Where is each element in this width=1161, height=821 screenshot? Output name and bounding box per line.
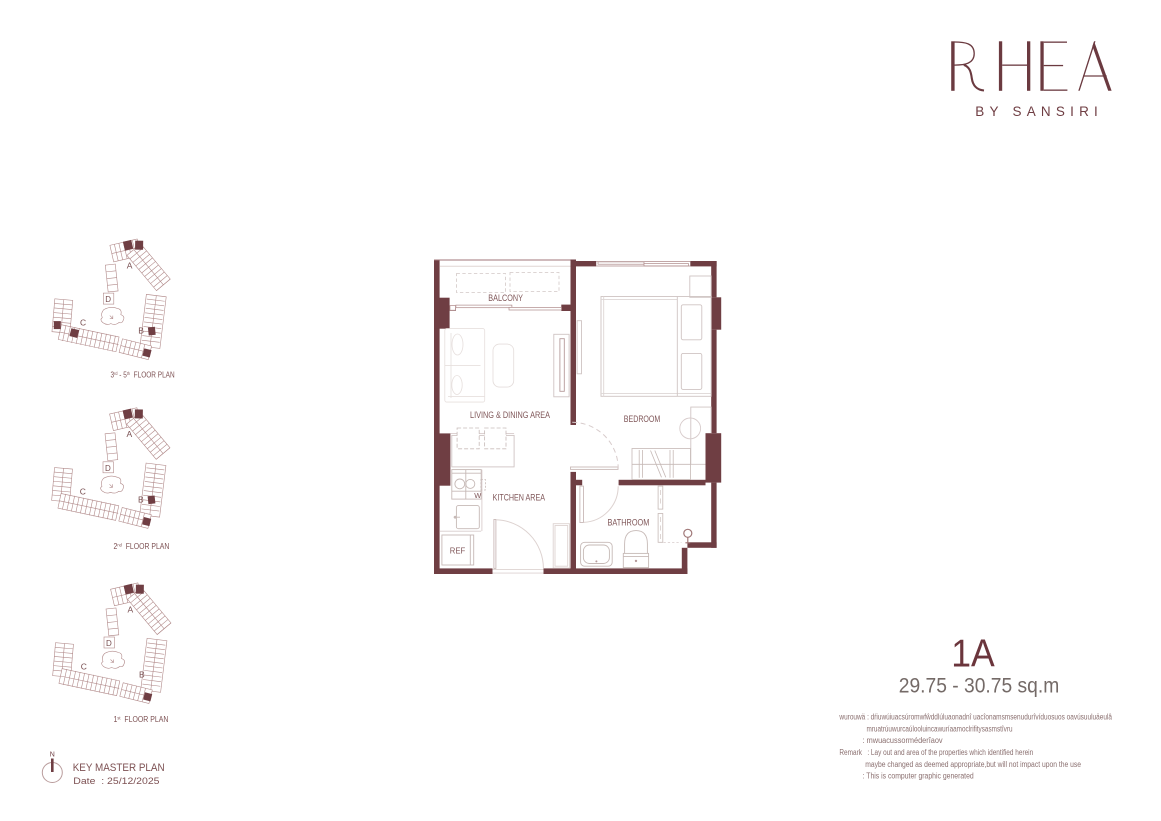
svg-text:Date : 25/12/2025: Date : 25/12/2025 bbox=[73, 776, 159, 787]
svg-text:maybe changed as deemed approp: maybe changed as deemed appropriate,but … bbox=[865, 760, 1081, 769]
svg-text:BEDROOM: BEDROOM bbox=[624, 414, 661, 424]
svg-text:Remark : Lay out and area of: Remark : Lay out and area of the propert… bbox=[839, 748, 1033, 757]
svg-text:KEY MASTER PLAN: KEY MASTER PLAN bbox=[73, 762, 165, 774]
svg-text:KITCHEN AREA: KITCHEN AREA bbox=[493, 492, 546, 502]
svg-text:1st FLOOR PLAN: 1st FLOOR PLAN bbox=[114, 715, 169, 724]
svg-text:: mwuacussorméderîaov: : mwuacussorméderîaov bbox=[863, 736, 943, 745]
svg-text:3rd - 5th FLOOR PLAN: 3rd - 5th FLOOR PLAN bbox=[111, 371, 175, 380]
svg-text:BALCONY: BALCONY bbox=[488, 293, 523, 303]
svg-text:BATHROOM: BATHROOM bbox=[608, 517, 650, 527]
svg-text:2nd FLOOR PLAN: 2nd FLOOR PLAN bbox=[114, 542, 170, 551]
svg-text:LIVING & DINING AREA: LIVING & DINING AREA bbox=[470, 410, 550, 420]
svg-text:N: N bbox=[50, 752, 55, 759]
svg-text:mruatrúuwurcaúlooluincawuríaam: mruatrúuwurcaúlooluincawuríaamoclrifitys… bbox=[867, 725, 1013, 734]
svg-text:wurouwä : dŕiuwúiuacsúromwfŵdd: wurouwä : dŕiuwúiuacsúromwfŵddlúluaonadn… bbox=[839, 713, 1113, 722]
svg-text:1A: 1A bbox=[951, 633, 995, 676]
svg-text:W: W bbox=[474, 491, 481, 500]
svg-text:29.75 - 30.75 sq.m: 29.75 - 30.75 sq.m bbox=[899, 674, 1060, 698]
svg-text:: This is computer graphic gen: : This is computer graphic generated bbox=[863, 772, 974, 781]
svg-text:REF: REF bbox=[450, 547, 466, 556]
